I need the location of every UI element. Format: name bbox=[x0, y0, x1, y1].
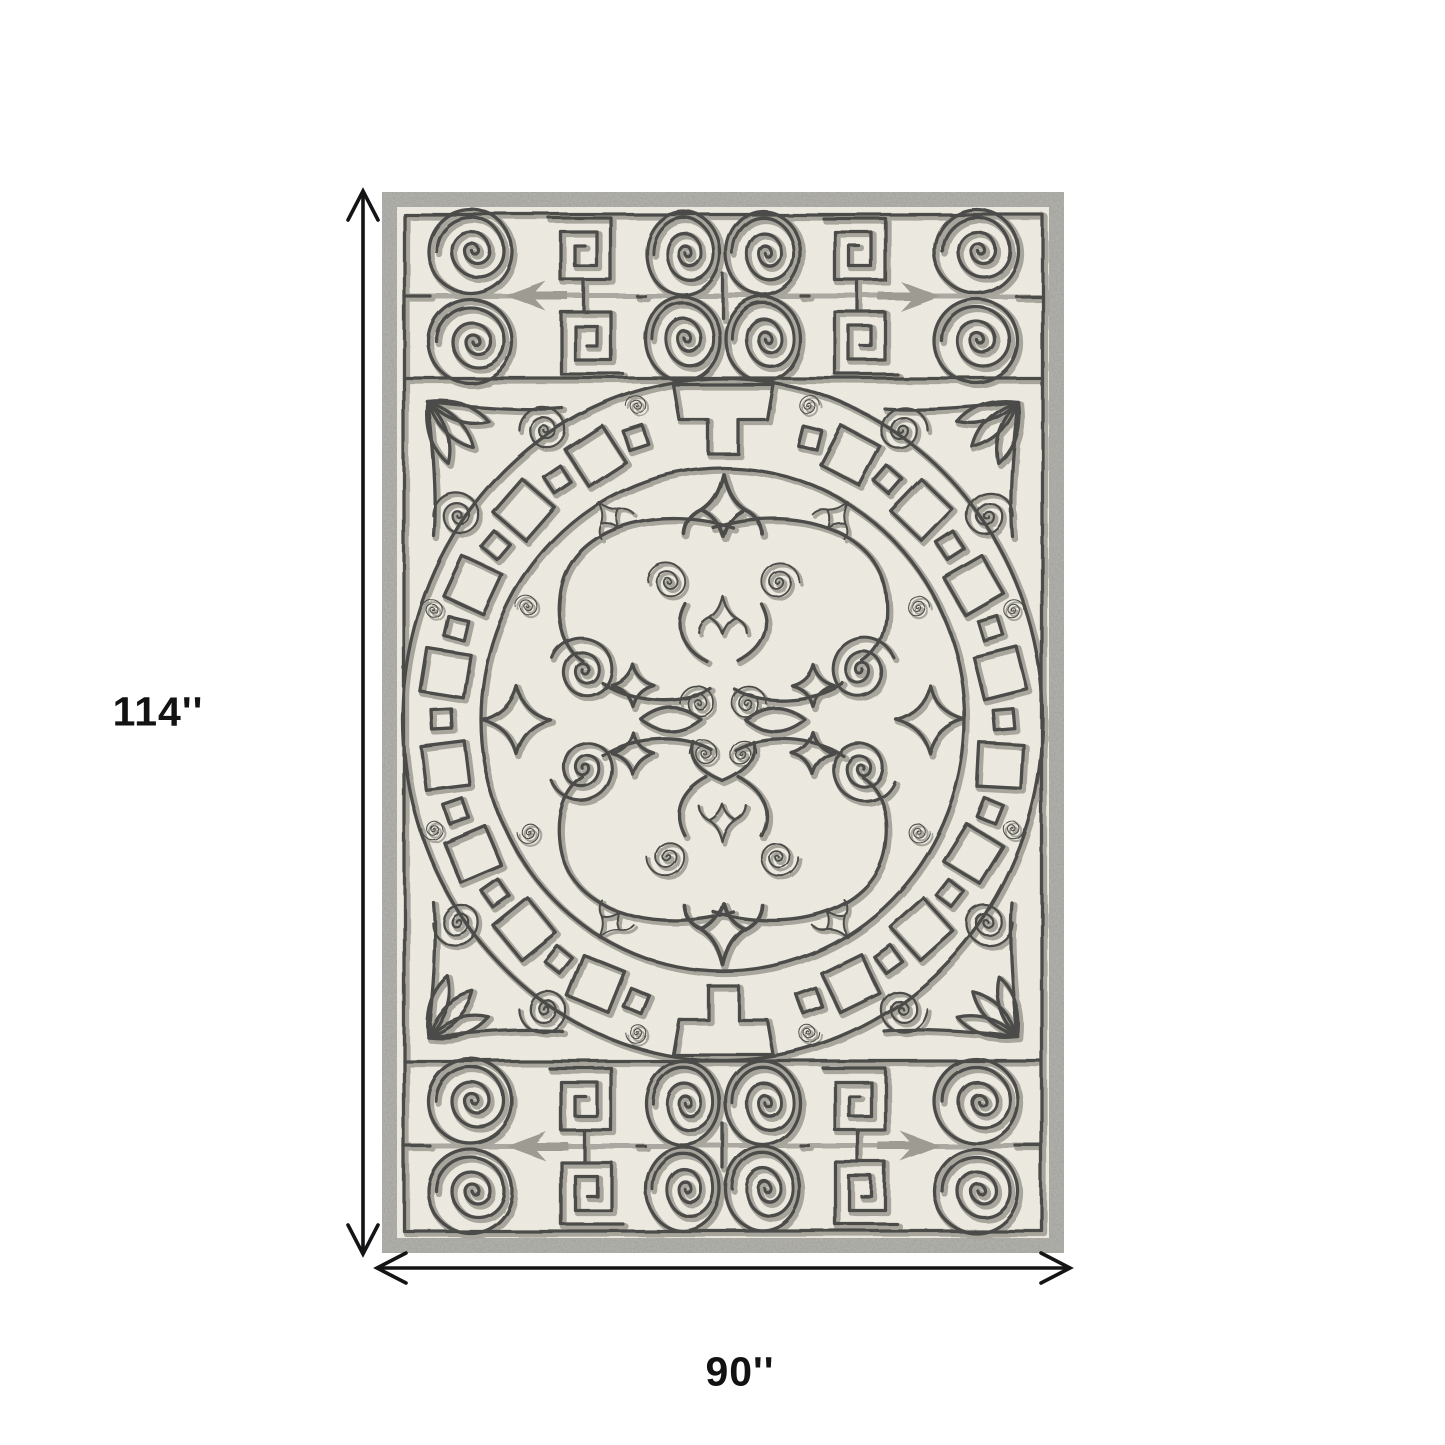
rug-illustration bbox=[382, 192, 1064, 1253]
height-label: 114'' bbox=[113, 689, 204, 736]
right-arrowhead-icon bbox=[1041, 1253, 1070, 1283]
product-dimension-figure: 114'' 90'' bbox=[0, 0, 1445, 1445]
left-arrowhead-icon bbox=[377, 1253, 406, 1283]
width-dimension-arrow bbox=[377, 1253, 1070, 1283]
down-arrowhead-icon bbox=[348, 1225, 378, 1254]
height-dimension-arrow bbox=[348, 191, 378, 1254]
up-arrowhead-icon bbox=[348, 191, 378, 220]
width-label: 90'' bbox=[705, 1349, 774, 1396]
